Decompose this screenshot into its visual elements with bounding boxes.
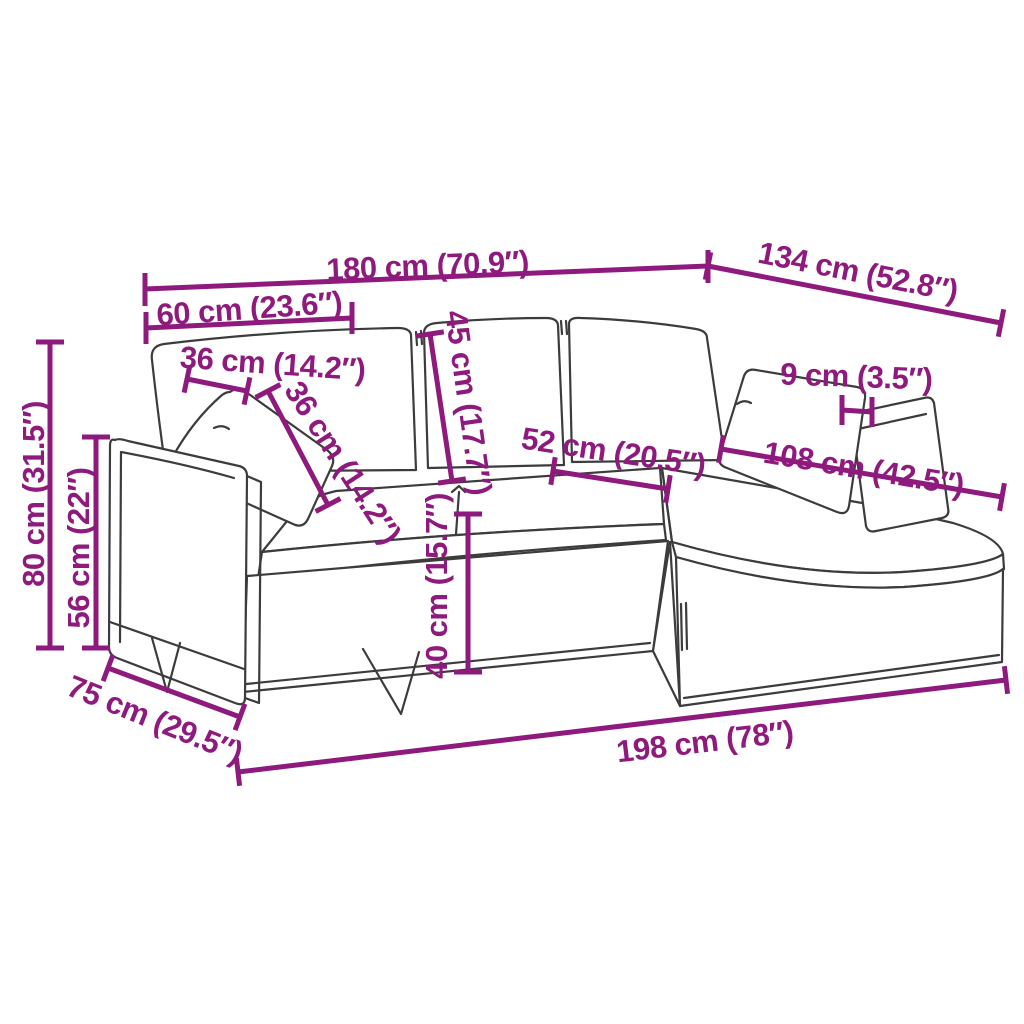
dimension-front-length: 198 cm (78″) xyxy=(236,666,1007,786)
dimension-label-back-width: 180 cm (70.9″) xyxy=(326,244,530,287)
dimension-label-cushion-thickness: 9 cm (3.5″) xyxy=(780,356,934,396)
dimension-label-left-module-width: 60 cm (23.6″) xyxy=(155,285,343,333)
armrest-panel xyxy=(109,439,247,704)
dimension-armrest-height: 56 cm (22″) xyxy=(61,437,110,648)
sofa-dimension-diagram: 180 cm (70.9″) 134 cm (52.8″) 60 cm (23.… xyxy=(0,0,1024,1024)
dimension-chaise-depth: 134 cm (52.8″) xyxy=(705,235,1003,337)
dimension-total-height: 80 cm (31.5″) xyxy=(16,342,64,648)
dimension-label-seat-height: 40 cm (15.7″) xyxy=(419,493,454,679)
dimension-label-armrest-height: 56 cm (22″) xyxy=(61,468,96,629)
dimension-label-total-height: 80 cm (31.5″) xyxy=(16,401,51,587)
diagram-canvas: 180 cm (70.9″) 134 cm (52.8″) 60 cm (23.… xyxy=(0,0,1024,1024)
